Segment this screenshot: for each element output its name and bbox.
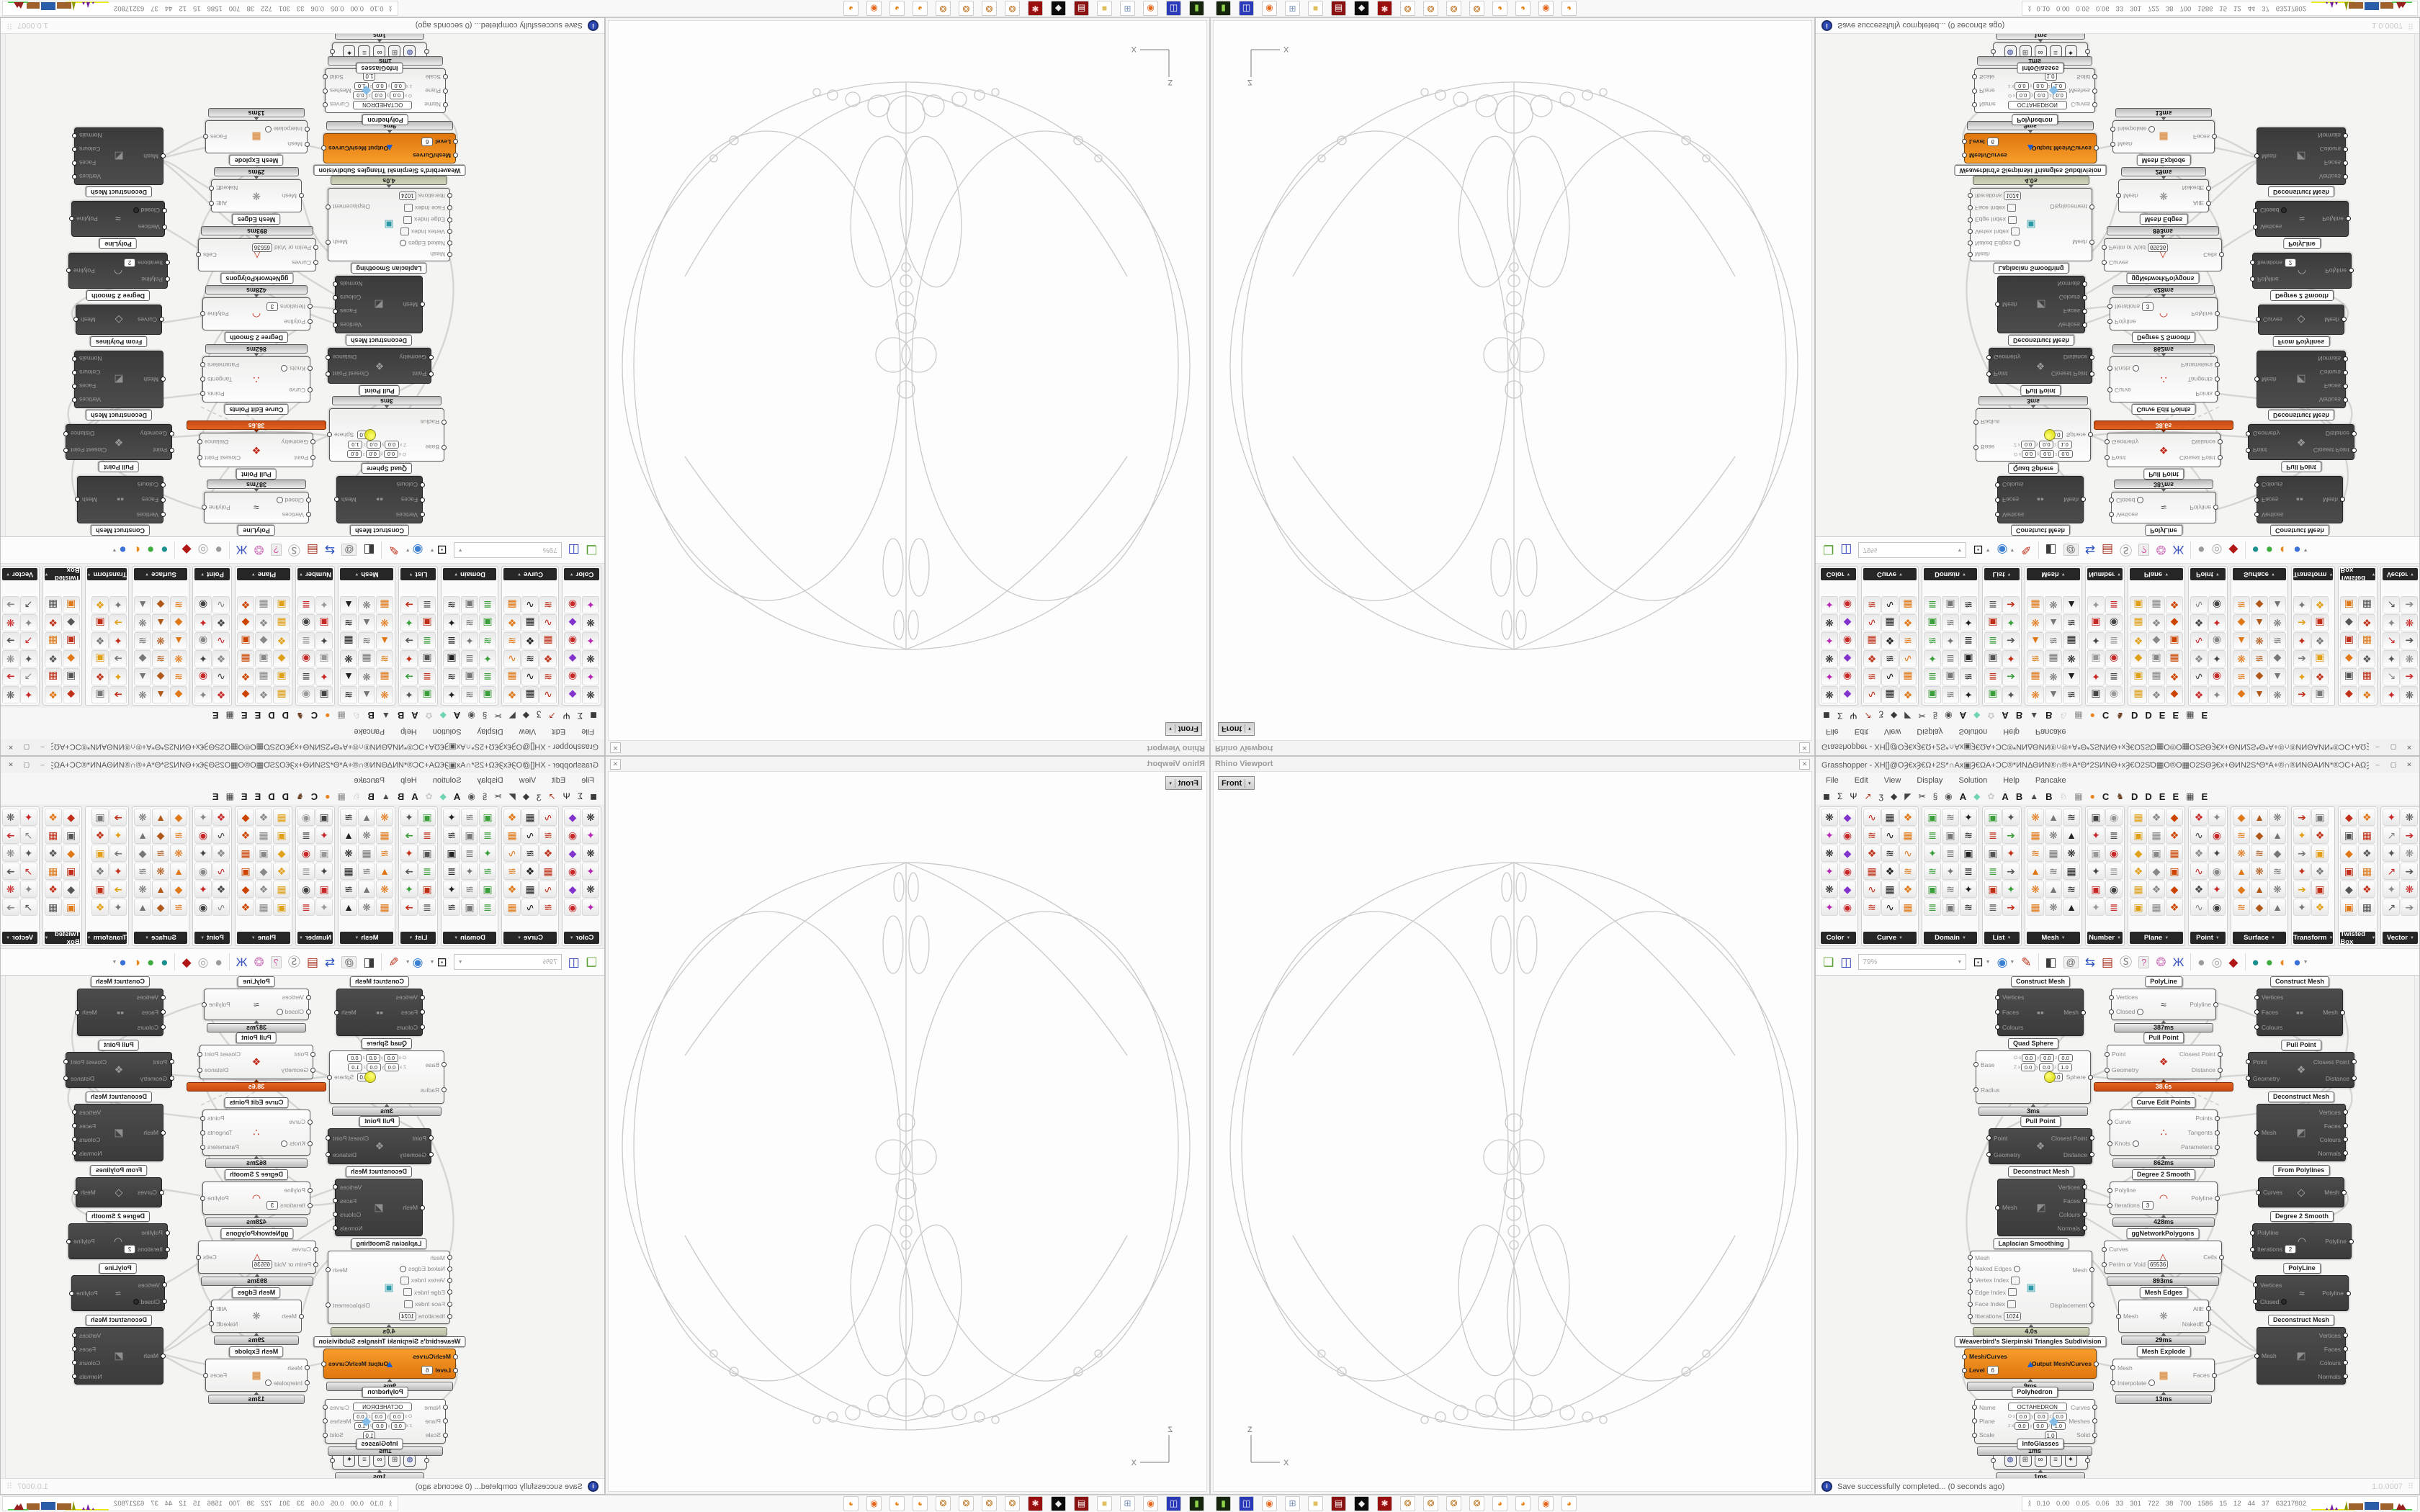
resize-grip-icon[interactable]: ⠿ <box>6 1482 12 1491</box>
port-dot[interactable] <box>72 147 77 152</box>
panel-label[interactable]: Mesh▼ <box>340 932 393 944</box>
value-box[interactable] <box>403 1288 412 1296</box>
port-dot[interactable] <box>1968 240 1973 246</box>
component-icon[interactable]: ▦ <box>503 827 521 844</box>
value-box[interactable] <box>2007 204 2016 212</box>
tab-icon[interactable]: ✂ <box>494 791 501 801</box>
taskbar-item-palette[interactable]: ❂ <box>982 1 997 16</box>
component-icon[interactable]: ✦ <box>1821 863 1838 880</box>
component-icon[interactable]: ▲ <box>2269 899 2286 916</box>
value-field[interactable]: 65536 <box>2148 243 2168 252</box>
tab-icon[interactable]: ◤ <box>1904 711 1911 721</box>
port-dot[interactable] <box>63 431 68 436</box>
component-icon[interactable]: ❖ <box>91 863 109 880</box>
node-label-polyline-mid[interactable]: PolyLine <box>238 976 275 987</box>
port-dot[interactable] <box>1986 355 1991 360</box>
node-label-mesh-edges[interactable]: Mesh Edges <box>233 1287 281 1298</box>
menu-view[interactable]: View <box>519 727 537 736</box>
output-port-solid[interactable]: Solid <box>323 73 344 81</box>
component-icon[interactable]: ✦ <box>582 863 599 880</box>
sketch-pen-icon[interactable]: ✎ <box>388 956 398 968</box>
component-icon[interactable]: ❖ <box>539 650 557 667</box>
port-dot[interactable] <box>200 1196 205 1201</box>
component-icon[interactable]: ❖ <box>45 845 62 862</box>
info-button-icon[interactable]: ◍ <box>404 1454 416 1467</box>
tab-letter[interactable]: B <box>368 711 375 721</box>
zoom-extents-icon[interactable]: ⊡ <box>436 956 447 968</box>
script-doc-icon[interactable]: ▤ <box>2102 544 2113 557</box>
component-icon[interactable]: ≋ <box>1881 845 1899 862</box>
port-dot[interactable] <box>2219 1255 2224 1260</box>
component-icon[interactable]: ❖ <box>2166 596 2183 613</box>
component-icon[interactable]: ▣ <box>91 686 109 703</box>
tab-letter[interactable]: A <box>411 791 418 802</box>
input-port-curve[interactable]: Curve <box>2107 1118 2139 1125</box>
tab-icon[interactable]: ◤ <box>509 711 516 721</box>
component-icon[interactable]: ❖ <box>1899 809 1917 826</box>
output-port-tangents[interactable]: Tangents <box>200 1129 233 1136</box>
port-dot[interactable] <box>2107 1203 2112 1208</box>
port-dot[interactable] <box>161 1009 166 1014</box>
component-icon[interactable]: ❖ <box>2311 596 2329 613</box>
node-label-deconstruct-mesh-right-1[interactable]: Deconstruct Mesh <box>2268 410 2334 420</box>
port-dot[interactable] <box>308 388 313 393</box>
component-icon[interactable]: ◉ <box>1839 863 1856 880</box>
component-icon[interactable]: ✦ <box>1821 596 1838 613</box>
node-label-deconstruct-mesh-right-2[interactable]: Deconstruct Mesh <box>86 1315 152 1326</box>
panel-label[interactable]: Transform▼ <box>2293 932 2333 944</box>
output-port-faces[interactable]: Faces <box>2063 308 2087 315</box>
port-dot[interactable] <box>2254 154 2259 159</box>
value-field[interactable]: 1024 <box>399 1312 416 1320</box>
component-icon[interactable]: ❖ <box>1881 863 1899 880</box>
component-icon[interactable]: ◆ <box>564 686 581 703</box>
value-field[interactable]: 0.0 <box>372 91 386 99</box>
input-port-curves[interactable]: Curves <box>2102 1246 2168 1253</box>
component-icon[interactable]: ✦ <box>1942 863 1959 880</box>
chevron-down-icon[interactable]: ▼ <box>2329 572 2333 577</box>
output-port-alle[interactable]: AllE <box>2193 1305 2211 1313</box>
component-icon[interactable]: ▣ <box>418 614 436 631</box>
component-icon[interactable]: ≋ <box>170 668 187 685</box>
node-pull-point-left[interactable]: PointGeometryClosest PointDistance❖ <box>1989 1128 2092 1164</box>
taskbar-item-palette[interactable]: ❂ <box>1446 1496 1461 1511</box>
value-field[interactable]: 0.0 <box>2039 1063 2053 1071</box>
output-port-polyline[interactable]: Polyline <box>69 1290 98 1297</box>
tab-letter[interactable]: E <box>255 791 261 802</box>
output-port-closest-point[interactable]: Closest Point <box>63 1058 107 1066</box>
port-dot[interactable] <box>72 356 77 361</box>
chevron-down-icon[interactable]: ▾ <box>1169 780 1175 786</box>
component-icon[interactable]: ▲ <box>2251 614 2268 631</box>
component-icon[interactable]: ▲ <box>358 881 375 898</box>
port-dot[interactable] <box>443 74 448 79</box>
port-dot[interactable] <box>453 1354 458 1359</box>
port-dot[interactable] <box>197 1052 202 1057</box>
node-ggnetworkpolygons[interactable]: CurvesPerim or Void65536Cells△ <box>198 238 316 271</box>
node-polyline-mid[interactable]: VerticesClosedPolyline≈ <box>204 492 309 523</box>
input-port-mesh-curves[interactable]: Mesh/Curves <box>1962 152 2007 159</box>
value-field[interactable]: 1024 <box>399 192 416 200</box>
input-port-vertices[interactable]: Vertices <box>2254 511 2283 518</box>
component-icon[interactable]: ▲ <box>2045 809 2062 826</box>
green-sphere-icon[interactable]: ● <box>147 956 154 968</box>
menu-file[interactable]: File <box>581 776 594 785</box>
component-icon[interactable]: ✦ <box>2002 881 2020 898</box>
component-icon[interactable]: ◆ <box>2340 809 2357 826</box>
port-dot[interactable] <box>447 252 452 257</box>
node-from-polylines[interactable]: CurvesMesh◇ <box>2258 1177 2344 1207</box>
component-icon[interactable]: ➔ <box>2 899 19 916</box>
node-pull-point-right[interactable]: PointGeometryClosest PointDistance❖ <box>66 424 172 460</box>
component-icon[interactable]: ≣ <box>479 668 496 685</box>
input-port-radius[interactable]: Radius <box>1973 419 1999 426</box>
component-icon[interactable]: ❖ <box>91 632 109 649</box>
zoom-select[interactable]: 79%▼ <box>454 542 562 558</box>
port-dot[interactable] <box>161 995 166 1000</box>
component-icon[interactable]: ↗ <box>2383 827 2400 844</box>
component-icon[interactable]: ▣ <box>255 845 272 862</box>
preview-box-icon[interactable]: ◧ <box>363 956 375 968</box>
component-icon[interactable]: ▦ <box>2063 632 2080 649</box>
port-dot[interactable] <box>2254 1009 2259 1014</box>
panel-label[interactable]: List▼ <box>400 568 436 580</box>
value-field[interactable]: 0.0 <box>366 1054 380 1062</box>
tab-letter[interactable]: B <box>398 711 404 721</box>
port-dot[interactable] <box>2109 1009 2114 1014</box>
component-icon[interactable]: ◆ <box>564 809 581 826</box>
port-dot[interactable] <box>1968 1302 1973 1307</box>
output-port-distance[interactable]: Distance <box>63 431 94 438</box>
input-port-base[interactable]: Base <box>1973 1061 1999 1068</box>
node-label-ggnetworkpolygons[interactable]: ggNetworkPolygons <box>220 1228 293 1239</box>
component-icon[interactable]: ❋ <box>2 809 19 826</box>
component-icon[interactable]: ◆ <box>2148 863 2165 880</box>
port-dot[interactable] <box>75 498 80 503</box>
component-icon[interactable]: ▦ <box>2027 668 2044 685</box>
component-icon[interactable]: ▣ <box>2087 881 2105 898</box>
output-port-faces[interactable]: Faces <box>72 160 96 167</box>
input-port-closed[interactable]: Closed <box>2109 497 2143 504</box>
component-icon[interactable]: ❋ <box>2 650 19 667</box>
component-icon[interactable]: ◉ <box>2208 632 2226 649</box>
value-field[interactable]: 0.0 <box>2015 82 2029 90</box>
component-icon[interactable]: ▣ <box>63 863 80 880</box>
component-icon[interactable]: ✦ <box>2293 668 2311 685</box>
component-icon[interactable]: ❋ <box>582 845 599 862</box>
script-doc-icon[interactable]: ▤ <box>307 956 318 968</box>
component-icon[interactable]: ✦ <box>109 899 127 916</box>
taskbar-item-firefox[interactable]: ◉ <box>1143 1 1158 16</box>
component-icon[interactable]: ▦ <box>376 596 393 613</box>
node-pull-point-right[interactable]: PointGeometryClosest PointDistance❖ <box>66 1052 172 1088</box>
port-dot[interactable] <box>447 217 452 222</box>
port-dot[interactable] <box>63 448 68 453</box>
toggle-circle[interactable] <box>277 1009 283 1015</box>
component-icon[interactable]: ∿ <box>1881 596 1899 613</box>
tab-icon[interactable]: ◉ <box>467 791 475 801</box>
port-dot[interactable] <box>1995 302 2000 307</box>
chevron-down-icon[interactable]: ▼ <box>430 960 435 965</box>
output-port-faces[interactable]: Faces <box>2324 1346 2348 1353</box>
output-port-colours[interactable]: Colours <box>2320 1136 2348 1143</box>
panel-label[interactable]: Plane▼ <box>2130 568 2183 580</box>
component-icon[interactable]: ▦ <box>273 614 290 631</box>
tab-letter[interactable]: A <box>2002 711 2008 721</box>
value-field[interactable]: 2 <box>2285 1245 2296 1254</box>
node-quad-sphere[interactable]: BaseRadiusSphereO x0.0y0.0z0.0Z x0.0y0.0… <box>329 1050 444 1104</box>
tab-letter[interactable]: C <box>2102 791 2109 802</box>
component-icon[interactable]: ▣ <box>2311 845 2329 862</box>
node-canvas[interactable]: Construct MeshVerticesFacesColoursMesh▪▪… <box>1816 34 2419 536</box>
pie-sphere-icon[interactable]: ◐ <box>133 544 140 557</box>
component-icon[interactable]: ▣ <box>63 596 80 613</box>
component-icon[interactable]: ✦ <box>1821 668 1838 685</box>
port-dot[interactable] <box>299 194 304 199</box>
help-package-icon[interactable]: ? <box>271 544 282 557</box>
taskbar-item-dark-app[interactable]: ◆ <box>1354 1496 1369 1511</box>
port-dot[interactable] <box>2089 1135 2094 1140</box>
component-icon[interactable]: ❋ <box>376 614 393 631</box>
output-port-mesh[interactable]: Mesh <box>2072 239 2094 246</box>
tab-icon[interactable]: ▦ <box>226 791 234 801</box>
component-icon[interactable]: ◆ <box>237 686 254 703</box>
input-port-geometry[interactable]: Geometry <box>1986 1151 2020 1158</box>
port-dot[interactable] <box>2246 1076 2251 1081</box>
port-dot[interactable] <box>333 309 338 314</box>
component-icon[interactable]: ≣ <box>297 632 315 649</box>
taskbar-item-palette[interactable]: ❂ <box>1423 1496 1438 1511</box>
node-label-quad-sphere[interactable]: Quad Sphere <box>2008 463 2058 474</box>
output-port-mesh[interactable]: Mesh <box>73 1189 96 1196</box>
node-label-weaverbird-sierpinski[interactable]: Weaverbird's Sierpinski Triangles Subdiv… <box>1954 165 2106 176</box>
tab-icon[interactable]: ↗ <box>549 791 556 801</box>
chevron-down-icon[interactable]: ▼ <box>2117 572 2121 577</box>
port-dot[interactable] <box>333 1212 338 1217</box>
tab-icon[interactable]: ✿ <box>426 711 433 721</box>
component-icon[interactable]: ❖ <box>2311 863 2329 880</box>
chevron-down-icon[interactable]: ▼ <box>299 936 303 940</box>
remote-icon[interactable]: @ <box>2063 956 2079 968</box>
port-dot[interactable] <box>447 1314 452 1319</box>
tab-letter[interactable]: E <box>241 791 248 802</box>
component-icon[interactable]: ∿ <box>1899 845 1917 862</box>
output-port-vertices[interactable]: Vertices <box>72 397 101 404</box>
menu-help[interactable]: Help <box>2003 727 2020 736</box>
component-icon[interactable]: ❖ <box>503 614 521 631</box>
node-weaverbird-sierpinski[interactable]: Mesh/CurvesLevel6Output Mesh/Curves▲ <box>1964 133 2097 163</box>
info-button-icon[interactable]: ✦ <box>344 1454 356 1467</box>
output-port-closest-point[interactable]: Closest Point <box>197 1050 241 1058</box>
component-icon[interactable]: ➔ <box>400 863 418 880</box>
input-port-vertices[interactable]: Vertices <box>2253 1282 2287 1289</box>
output-port-colours[interactable]: Colours <box>2320 369 2348 377</box>
input-port-mesh[interactable]: Mesh <box>282 1313 304 1320</box>
component-icon[interactable]: ◆ <box>152 827 169 844</box>
component-icon[interactable]: ∿ <box>521 596 539 613</box>
node-label-weaverbird-sierpinski[interactable]: Weaverbird's Sierpinski Triangles Subdiv… <box>313 1336 465 1347</box>
component-icon[interactable]: ▣ <box>479 614 496 631</box>
component-icon[interactable]: ▲ <box>2063 668 2080 685</box>
component-icon[interactable]: ◆ <box>273 650 290 667</box>
component-icon[interactable]: ▣ <box>91 614 109 631</box>
component-icon[interactable]: ◆ <box>2166 809 2183 826</box>
component-icon[interactable]: ◉ <box>194 596 212 613</box>
component-icon[interactable]: ▣ <box>273 596 290 613</box>
component-icon[interactable]: ▣ <box>461 596 478 613</box>
port-dot[interactable] <box>2246 1059 2251 1064</box>
green-sphere-icon[interactable]: ● <box>2266 544 2273 557</box>
taskbar-item-blender[interactable]: ◕ <box>913 1 928 16</box>
node-weaverbird-sierpinski[interactable]: Mesh/CurvesLevel6Output Mesh/Curves▲ <box>323 1349 456 1379</box>
component-icon[interactable]: ❖ <box>2190 614 2208 631</box>
chevron-down-icon[interactable]: ▼ <box>1899 572 1903 577</box>
output-port-mesh[interactable]: Mesh <box>73 316 96 323</box>
component-icon[interactable]: ❖ <box>521 632 539 649</box>
port-dot[interactable] <box>1995 482 2000 487</box>
component-icon[interactable]: ≣ <box>1942 845 1959 862</box>
output-port-polyline[interactable]: Polyline <box>2191 1194 2220 1202</box>
component-icon[interactable]: ▦ <box>2358 632 2375 649</box>
port-dot[interactable] <box>2088 1075 2093 1080</box>
component-icon[interactable]: ❖ <box>503 809 521 826</box>
dna-icon[interactable]: Ж <box>2173 956 2184 968</box>
port-dot[interactable] <box>2343 356 2348 361</box>
input-port-colours[interactable]: Colours <box>396 481 425 488</box>
component-icon[interactable]: ❖ <box>2311 668 2329 685</box>
node-label-pull-point-mid[interactable]: Pull Point <box>2143 1032 2184 1043</box>
output-port-polyline[interactable]: Polyline <box>69 215 98 222</box>
component-icon[interactable]: ❋ <box>2269 686 2286 703</box>
node-curve-edit-points[interactable]: CurveKnotsPointsTangentsParameters∴ <box>202 1110 310 1156</box>
input-port-face-index[interactable]: Face Index <box>399 204 452 212</box>
input-port-vertices[interactable]: Vertices <box>1995 511 2024 518</box>
component-icon[interactable]: ✦ <box>2293 596 2311 613</box>
component-icon[interactable]: ▦ <box>2045 845 2062 862</box>
node-polyline-right[interactable]: VerticesClosedPolyline≈ <box>2255 201 2349 237</box>
input-port-closed[interactable]: Closed <box>133 207 167 215</box>
component-icon[interactable]: ▣ <box>1942 668 1959 685</box>
port-dot[interactable] <box>161 377 166 382</box>
input-port-itterations[interactable]: Itterations1024 <box>399 192 452 200</box>
gem-icon[interactable]: ◆ <box>2228 956 2238 968</box>
input-port-polyline[interactable]: Polyline <box>266 318 313 325</box>
port-dot[interactable] <box>2254 377 2259 382</box>
port-dot[interactable] <box>2089 355 2094 360</box>
input-port-mesh[interactable]: Mesh <box>399 1254 452 1261</box>
output-port-blank[interactable] <box>2083 1458 2090 1463</box>
output-port-normals[interactable]: Normals <box>2318 132 2348 140</box>
port-dot[interactable] <box>1968 205 1973 210</box>
component-icon[interactable]: ▲ <box>2269 596 2286 613</box>
taskbar-item-firefox[interactable]: ◉ <box>1538 1 1554 16</box>
node-mesh-edges[interactable]: MeshAllENakedE❋ <box>211 179 302 212</box>
port-dot[interactable] <box>330 50 335 55</box>
expand-chevron-icon[interactable]: ∧∧ <box>388 1501 392 1507</box>
chevron-down-icon[interactable]: ▼ <box>112 960 117 965</box>
port-dot[interactable] <box>443 102 448 107</box>
taskbar-item-calculator[interactable]: ⊞ <box>1120 1 1135 16</box>
input-port-perim-or-void[interactable]: Perim or Void65536 <box>252 1260 318 1269</box>
tab-icon[interactable]: ◤ <box>509 791 516 801</box>
output-port-parameters[interactable]: Parameters <box>200 361 239 369</box>
close-icon[interactable]: ✕ <box>1799 743 1810 754</box>
component-icon[interactable]: ▦ <box>2045 650 2062 667</box>
port-dot[interactable] <box>2212 1373 2217 1378</box>
port-dot[interactable] <box>196 1255 201 1260</box>
panel-label[interactable]: Point▼ <box>2190 568 2226 580</box>
port-dot[interactable] <box>200 1145 205 1150</box>
component-icon[interactable]: ❋ <box>2063 845 2080 862</box>
value-field[interactable]: 65536 <box>252 1260 272 1269</box>
tab-icon[interactable]: ◆ <box>1973 791 1980 801</box>
panel-label[interactable]: List▼ <box>1984 568 2020 580</box>
component-icon[interactable]: ✦ <box>400 845 418 862</box>
component-icon[interactable]: ◆ <box>1839 650 1856 667</box>
component-icon[interactable]: ∿ <box>503 650 521 667</box>
port-dot[interactable] <box>299 1314 304 1319</box>
info-button-icon[interactable]: ∞ <box>374 1454 386 1467</box>
component-icon[interactable]: ≋ <box>1863 899 1881 916</box>
menu-solution[interactable]: Solution <box>1958 727 1987 736</box>
component-icon[interactable]: ▦ <box>45 827 62 844</box>
component-icon[interactable]: ◆ <box>152 899 169 916</box>
port-dot[interactable] <box>2215 392 2220 397</box>
component-icon[interactable]: ❋ <box>2401 845 2418 862</box>
component-icon[interactable]: ◆ <box>2251 668 2268 685</box>
taskbar-item-red-gear[interactable]: ✱ <box>1028 1496 1043 1511</box>
component-icon[interactable]: ≋ <box>170 899 187 916</box>
port-dot[interactable] <box>1968 1255 1973 1260</box>
component-icon[interactable]: ≋ <box>340 686 357 703</box>
node-pull-point-right[interactable]: PointGeometryClosest PointDistance❖ <box>2248 1052 2354 1088</box>
port-dot[interactable] <box>66 1239 71 1244</box>
component-icon[interactable]: ↗ <box>20 632 37 649</box>
component-icon[interactable]: ❖ <box>2148 881 2165 898</box>
component-icon[interactable]: ◉ <box>297 881 315 898</box>
component-icon[interactable]: ❋ <box>376 686 393 703</box>
component-icon[interactable]: ▣ <box>2311 650 2329 667</box>
component-icon[interactable]: ➔ <box>2002 827 2020 844</box>
component-icon[interactable]: ❖ <box>2166 668 2183 685</box>
component-icon[interactable]: ▣ <box>2130 899 2147 916</box>
taskbar-item-red-gear[interactable]: ✱ <box>1028 1 1043 16</box>
expand-chevron-icon[interactable]: ∧∧ <box>2027 6 2031 12</box>
port-dot[interactable] <box>447 229 452 234</box>
tab-icon[interactable]: ▦ <box>337 791 345 801</box>
output-port-normals[interactable]: Normals <box>72 1150 102 1157</box>
chevron-down-icon[interactable]: ▼ <box>354 936 359 940</box>
component-icon[interactable]: ◆ <box>237 881 254 898</box>
tab-letter[interactable]: B <box>2016 711 2022 721</box>
node-mesh-edges[interactable]: MeshAllENakedE❋ <box>2118 1300 2209 1333</box>
port-dot[interactable] <box>447 193 452 198</box>
port-dot[interactable] <box>2250 1230 2255 1236</box>
input-port-vertices[interactable]: Vertices <box>2254 994 2283 1001</box>
component-icon[interactable]: ≋ <box>1960 596 1977 613</box>
tab-icon[interactable]: ▦ <box>2074 711 2082 721</box>
port-dot[interactable] <box>2343 161 2348 166</box>
node-label-construct-mesh-1[interactable]: Construct Mesh <box>350 525 409 536</box>
port-dot[interactable] <box>1973 420 1978 425</box>
port-dot[interactable] <box>72 1110 77 1115</box>
node-label-polyhedron[interactable]: Polyhedron <box>362 114 408 125</box>
component-icon[interactable]: ▣ <box>418 881 436 898</box>
menu-pancake[interactable]: Pancake <box>354 776 385 785</box>
component-icon[interactable]: ↗ <box>20 827 37 844</box>
component-icon[interactable]: ≋ <box>1942 614 1959 631</box>
component-icon[interactable]: ▣ <box>2148 845 2165 862</box>
